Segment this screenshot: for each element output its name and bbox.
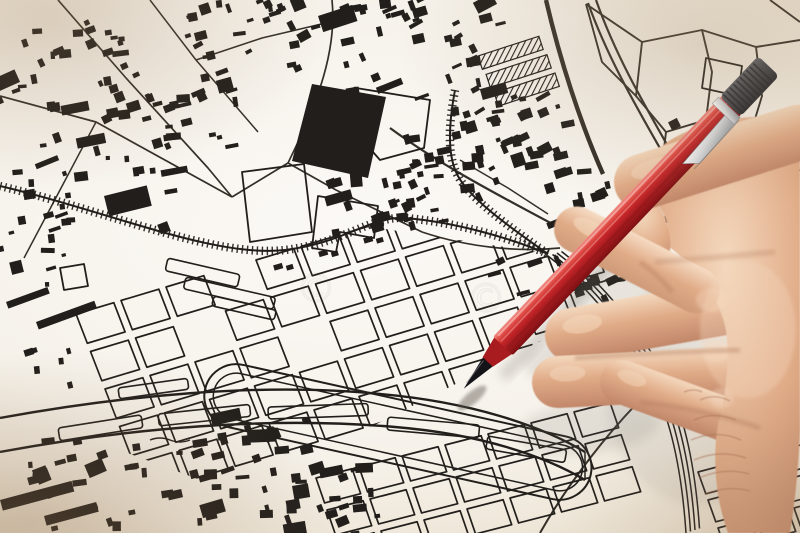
photo-canvas: © © [0, 0, 800, 533]
watermark-symbol: © [466, 276, 506, 322]
stock-photo-hand-drawing-city-map: © © [0, 0, 800, 533]
watermark-symbol: © [296, 266, 336, 312]
big-black-building [292, 84, 386, 178]
